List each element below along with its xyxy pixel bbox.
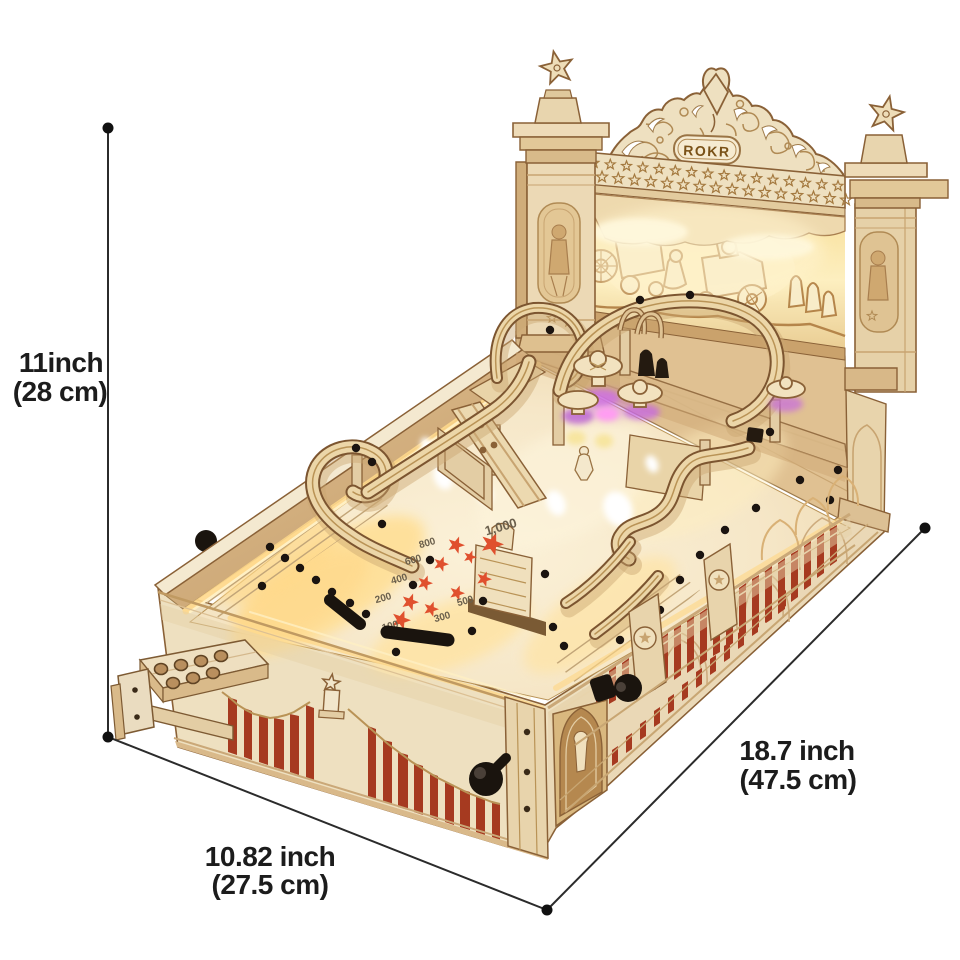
svg-text:(47.5 cm): (47.5 cm)	[740, 764, 857, 795]
svg-text:11inch: 11inch	[19, 347, 103, 378]
svg-text:ROKR: ROKR	[683, 142, 731, 160]
svg-text:(27.5 cm): (27.5 cm)	[212, 869, 329, 900]
svg-text:10.82 inch: 10.82 inch	[205, 841, 335, 872]
svg-text:(28 cm): (28 cm)	[13, 376, 108, 407]
svg-text:18.7 inch: 18.7 inch	[739, 735, 854, 766]
